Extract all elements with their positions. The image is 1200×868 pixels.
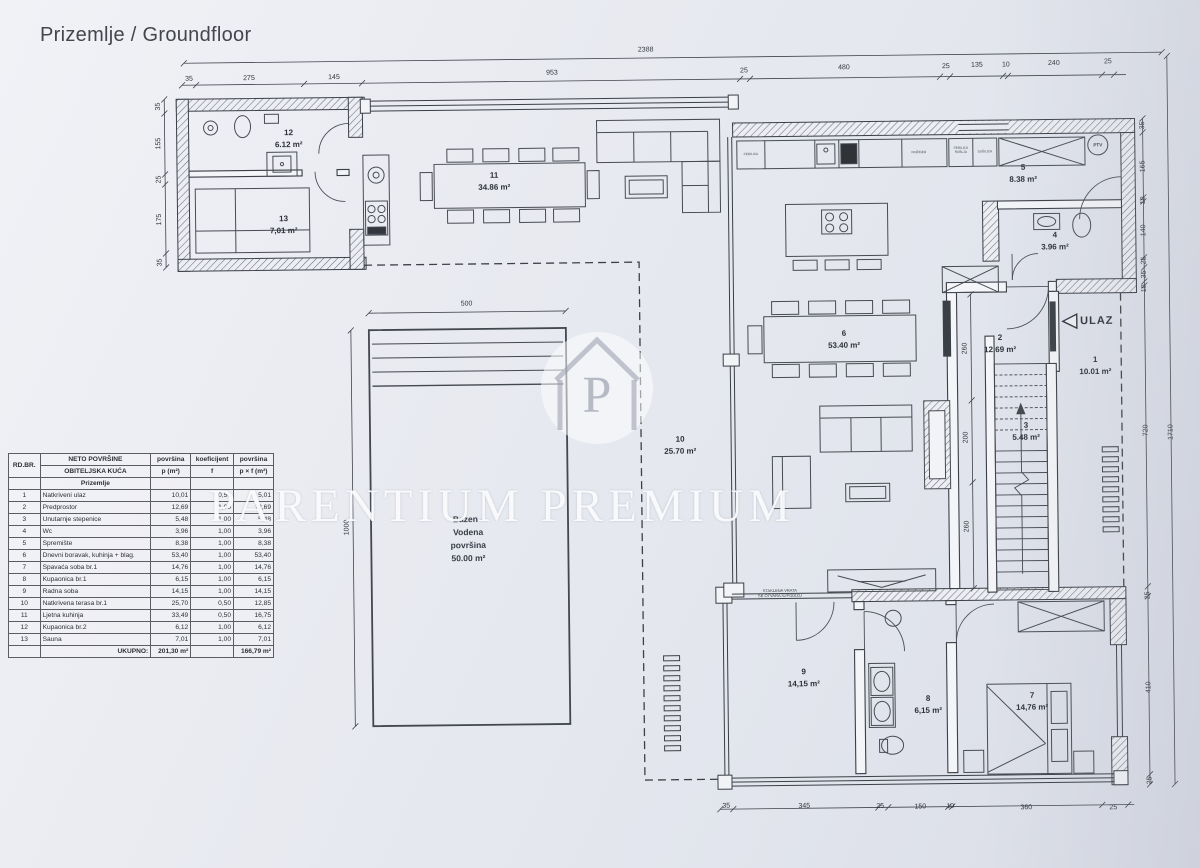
dimension-label: 500 (461, 301, 473, 308)
exterior-walls (176, 88, 1142, 795)
dimension-label: 10 (946, 803, 954, 810)
plan-note: Bazen - Vodena površina 50.00 m² (450, 513, 486, 565)
plan-note: SUŠILICA (978, 150, 993, 154)
plan-note: PERILICA RUBLJA (954, 147, 969, 154)
dimension-label: 360 (1020, 804, 1032, 811)
top-wall-window (959, 121, 1009, 134)
room-label: 4 3.96 m² (1041, 229, 1069, 253)
dimension-label: 240 (1048, 60, 1060, 67)
room-label: 7 14,76 m² (1016, 690, 1048, 714)
entry-arrow-icon (1063, 314, 1077, 328)
dimension-label: 140 (1140, 225, 1147, 237)
floor-plan-drawing: 12 6.12 m²13 7,01 m²11 34.86 m²5 8.38 m²… (0, 0, 1200, 868)
dimension-label: 25 (156, 176, 163, 184)
dimension-label: 155 (155, 138, 162, 150)
dimension-label: 135 (971, 62, 983, 69)
plan-note: STAKLENA VRATA SE OTVARAJU/PODIŽU (758, 589, 802, 599)
dimension-label: 10 (1141, 284, 1148, 292)
room-label: 6 53.40 m² (828, 328, 860, 352)
dimension-label: 2388 (638, 46, 654, 53)
dimension-label: 953 (546, 70, 558, 77)
plan-note: PTV (1093, 142, 1102, 147)
dimension-label: 200 (963, 432, 970, 444)
dimension-label: 10 (1002, 61, 1010, 68)
plan-note: FRIŽIDER (912, 151, 927, 155)
dimension-label: 25 (1109, 804, 1117, 811)
dimension-label: 720 (1142, 424, 1149, 436)
dimension-label: 150 (914, 803, 926, 810)
room-label: 2 12.69 m² (984, 332, 1016, 356)
dimension-label: 35 (722, 803, 730, 810)
dimension-label: 175 (156, 214, 163, 226)
dimension-label: 275 (243, 75, 255, 82)
dimension-label: 410 (1145, 681, 1152, 693)
dimension-label: 260 (964, 521, 971, 533)
stairs (994, 364, 1049, 591)
room-label: 13 7,01 m² (270, 213, 298, 237)
room-label: 3 5.48 m² (1012, 420, 1040, 444)
dimension-label: 145 (328, 74, 340, 81)
room-label: 9 14,15 m² (788, 666, 820, 690)
dimension-label: 35 (157, 259, 164, 267)
dimension-label: 25 (740, 67, 748, 74)
plan-note: PERILICA (744, 153, 759, 157)
dimension-label: 260 (962, 343, 969, 355)
entry-label: ULAZ (1080, 315, 1113, 327)
dimension-label: 25 (1104, 58, 1112, 65)
dimension-label: 25 (1141, 256, 1148, 264)
dimension-label: 35 (1139, 121, 1146, 129)
dimension-label: 480 (838, 64, 850, 71)
dimension-label: 35 (185, 76, 193, 83)
scanned-floor-plan-page: Prizemlje / Groundfloor RD.BR. NETO POVR… (0, 0, 1200, 868)
dimension-label: 25 (1144, 591, 1151, 599)
room-label: 1 10.01 m² (1079, 354, 1111, 378)
dimension-label: 1000 (343, 520, 350, 536)
dimension-label: 165 (1139, 161, 1146, 173)
dimension-label: 35 (155, 103, 162, 111)
room-label: 8 6,15 m² (914, 693, 942, 717)
dimension-label: 10 (1140, 196, 1147, 204)
dimension-label: 1710 (1167, 424, 1174, 440)
dimension-label: 25 (876, 803, 884, 810)
dimension-label: 25 (942, 63, 950, 70)
dimension-label: 35 (1141, 270, 1148, 278)
dimension-label: 345 (798, 803, 810, 810)
room-label: 5 8.38 m² (1009, 162, 1037, 186)
room-label: 11 34.86 m² (478, 170, 510, 194)
room-label: 12 6.12 m² (275, 127, 303, 151)
room-label: 10 25.70 m² (664, 433, 696, 457)
furniture (194, 105, 1115, 783)
dimension-label: 25 (1146, 776, 1153, 784)
